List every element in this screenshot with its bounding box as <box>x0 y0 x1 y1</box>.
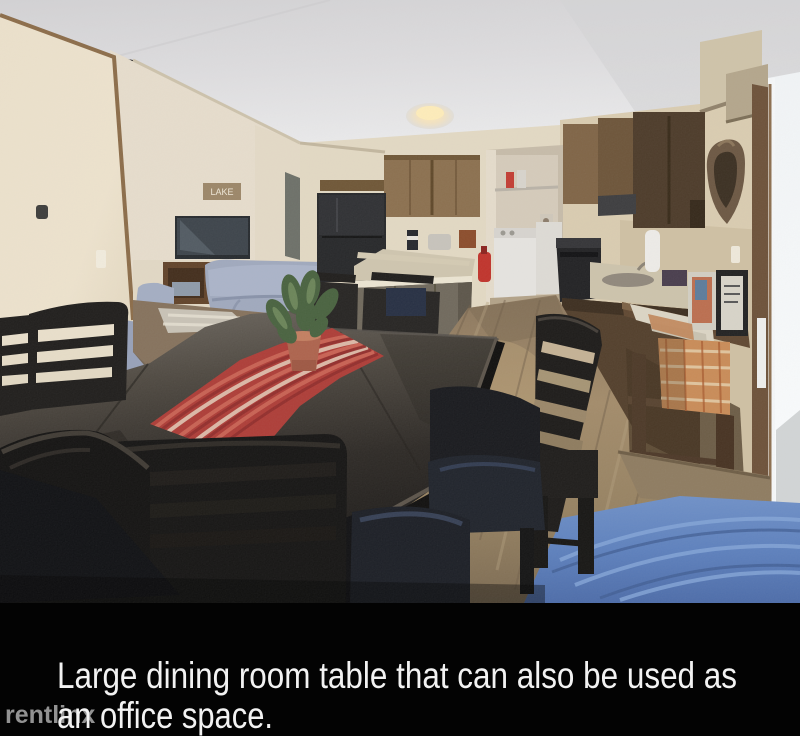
svg-text:an office space.: an office space. <box>57 695 273 736</box>
svg-text:Large dining room table that c: Large dining room table that can also be… <box>57 655 737 696</box>
